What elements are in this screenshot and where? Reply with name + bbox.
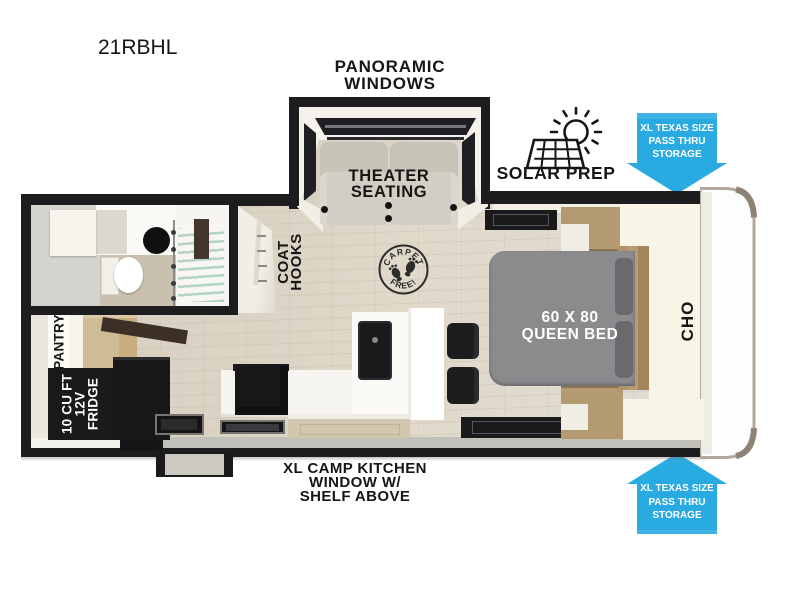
svg-text:CARPET: CARPET <box>381 246 426 267</box>
svg-text:FREE!: FREE! <box>388 276 418 290</box>
